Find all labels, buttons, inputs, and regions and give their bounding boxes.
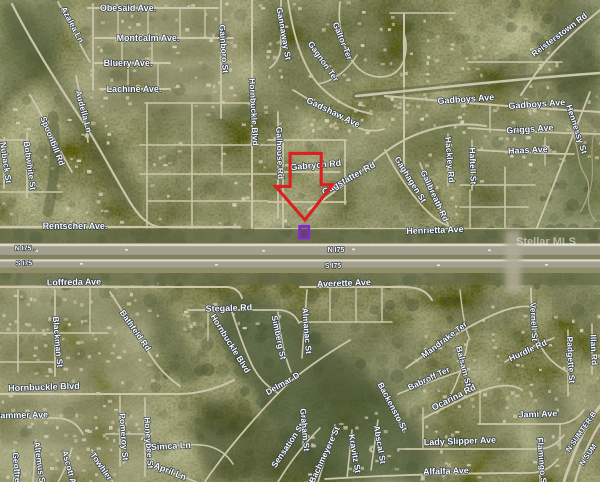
svg-text:Henrietta Ave: Henrietta Ave	[406, 224, 464, 236]
svg-text:Haftell St: Haftell St	[467, 147, 478, 184]
svg-text:Stellar MLS: Stellar MLS	[516, 236, 576, 248]
svg-text:Galhouse Rd: Galhouse Rd	[274, 127, 286, 180]
svg-text:Averette Ave: Averette Ave	[317, 277, 371, 289]
svg-text:S I75: S I75	[16, 261, 32, 268]
svg-text:N I75 .: N I75 .	[15, 246, 36, 253]
svg-text:Montcalm Ave.: Montcalm Ave.	[117, 33, 180, 43]
svg-text:Stegale Rd: Stegale Rd	[205, 302, 252, 314]
svg-text:Obesaid Ave.: Obesaid Ave.	[100, 3, 156, 13]
svg-text:Lachine Ave.: Lachine Ave.	[107, 84, 162, 94]
svg-text:Hammer Ave: Hammer Ave	[0, 410, 48, 421]
svg-text:Jami Ave: Jami Ave	[518, 408, 557, 419]
svg-text:Vernell St: Vernell St	[528, 302, 540, 341]
svg-text:Haas Ave: Haas Ave	[508, 144, 548, 156]
svg-text:N I75: N I75	[328, 247, 345, 254]
svg-text:Rentscher Ave.: Rentscher Ave.	[43, 221, 108, 231]
svg-text:Alfalfa Ave: Alfalfa Ave	[423, 465, 469, 477]
svg-text:Bluery Ave.: Bluery Ave.	[104, 58, 153, 68]
svg-text:Loffreda Ave: Loffreda Ave	[47, 277, 102, 288]
svg-text:Illan Rd: Illan Rd	[588, 334, 600, 365]
svg-text:Simca Ln: Simca Ln	[151, 440, 191, 452]
svg-text:S I75: S I75	[325, 263, 341, 270]
